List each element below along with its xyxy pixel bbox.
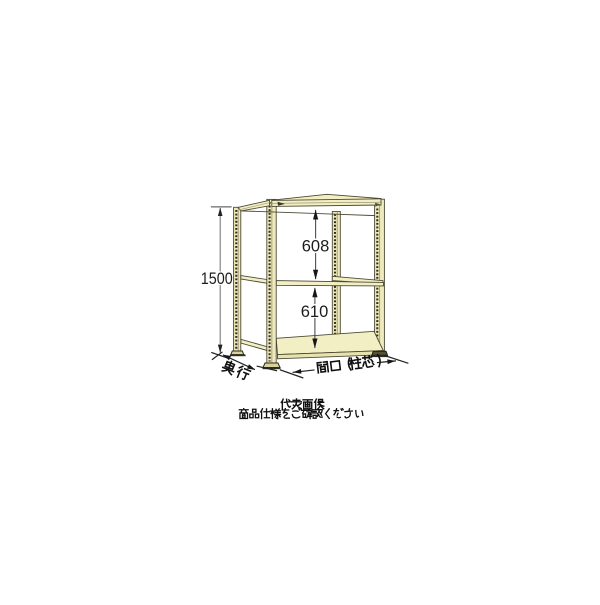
svg-text:608: 608	[302, 238, 330, 256]
svg-text:1500: 1500	[201, 270, 233, 288]
svg-text:610: 610	[301, 303, 329, 321]
